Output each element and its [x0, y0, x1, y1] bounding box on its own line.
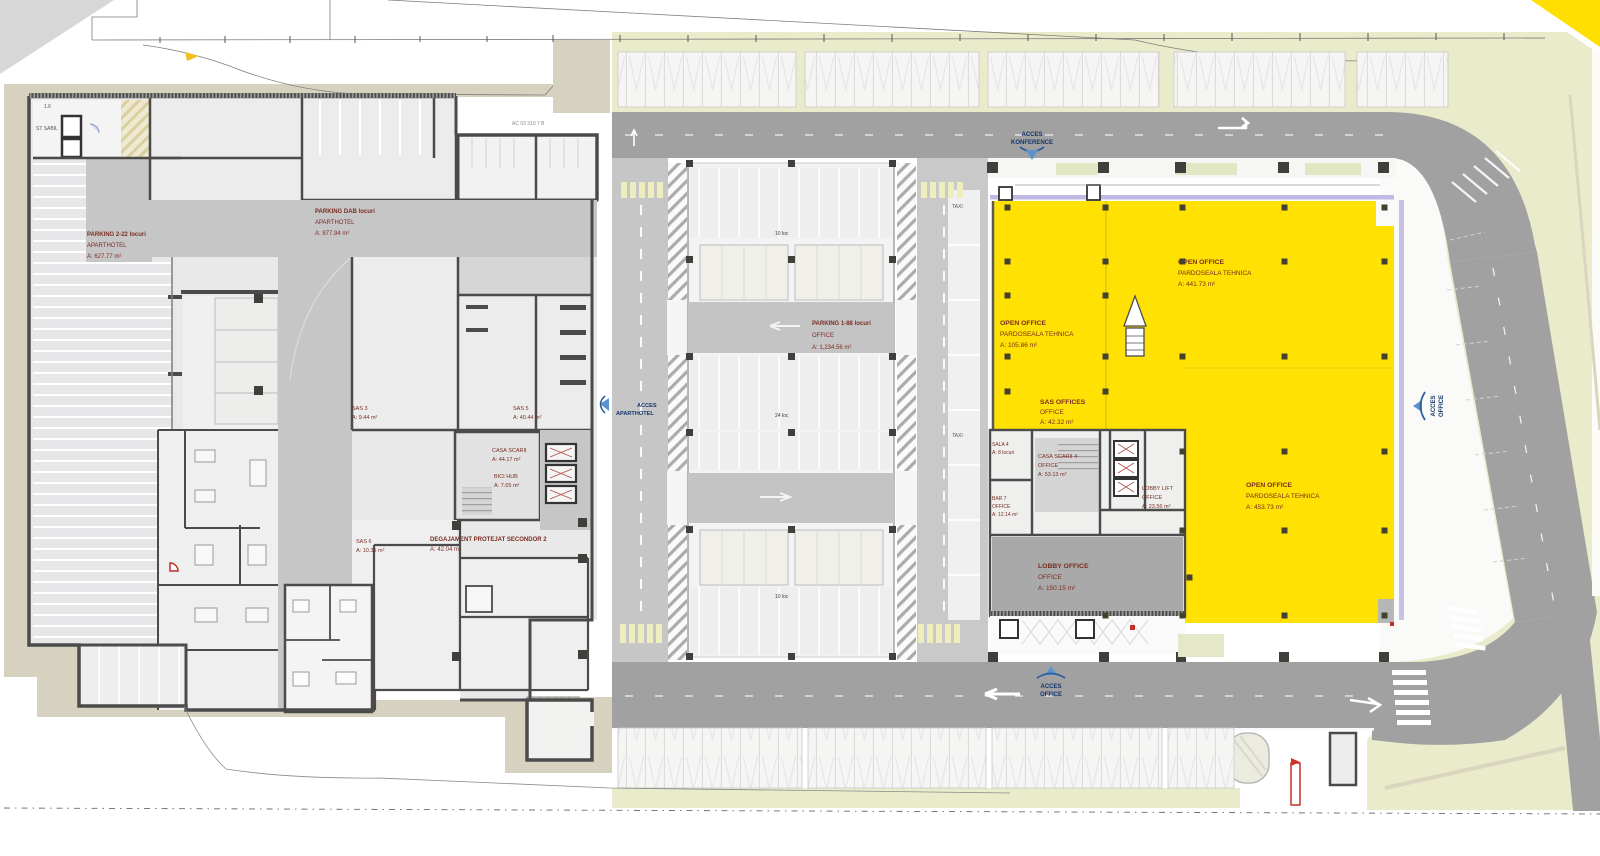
svg-text:A: 1,234.56 m²: A: 1,234.56 m²	[812, 345, 851, 351]
svg-text:APARTHOTEL: APARTHOTEL	[87, 243, 127, 249]
svg-text:DEGAJAMENT PROTEJAT SECONDOR 2: DEGAJAMENT PROTEJAT SECONDOR 2	[430, 537, 547, 543]
svg-text:1.6: 1.6	[44, 104, 51, 110]
svg-text:OFFICE: OFFICE	[1038, 463, 1058, 469]
svg-text:A: 53.13 m²: A: 53.13 m²	[1038, 472, 1067, 478]
svg-text:OFFICE: OFFICE	[1040, 692, 1062, 698]
svg-text:PARDOSEALA TEHNICA: PARDOSEALA TEHNICA	[1246, 493, 1320, 500]
svg-text:SAS 5: SAS 5	[513, 406, 529, 412]
svg-text:A: 105.86 m²: A: 105.86 m²	[1000, 342, 1038, 349]
svg-text:CASA SCARII 4: CASA SCARII 4	[1038, 454, 1077, 460]
svg-text:OPEN OFFICE: OPEN OFFICE	[1246, 482, 1293, 489]
svg-text:A: 627.77 m²: A: 627.77 m²	[87, 254, 121, 260]
svg-text:ACCES: ACCES	[637, 403, 657, 409]
svg-text:APARTHOTEL: APARTHOTEL	[315, 220, 355, 226]
svg-text:SALA 4: SALA 4	[992, 442, 1009, 448]
svg-text:PARDOSEALA TEHNICA: PARDOSEALA TEHNICA	[1000, 331, 1074, 338]
svg-text:APARTHOTEL: APARTHOTEL	[616, 411, 654, 417]
svg-text:A: 441.73 m²: A: 441.73 m²	[1178, 281, 1216, 288]
svg-text:A: 12.14 m²: A: 12.14 m²	[992, 512, 1018, 518]
svg-text:ST SABIL: ST SABIL	[36, 126, 58, 132]
svg-text:24 loc: 24 loc	[775, 413, 789, 419]
svg-text:A: 877.94 m²: A: 877.94 m²	[315, 231, 349, 237]
svg-text:LOBBY OFFICE: LOBBY OFFICE	[1038, 563, 1089, 570]
svg-text:SAS 6: SAS 6	[356, 539, 372, 545]
svg-text:PARDOSEALA TEHNICA: PARDOSEALA TEHNICA	[1178, 270, 1252, 277]
svg-text:BAR 7: BAR 7	[992, 496, 1007, 502]
svg-text:10 loc: 10 loc	[775, 231, 789, 237]
svg-text:PARKING 2-22 locuri: PARKING 2-22 locuri	[87, 232, 146, 238]
svg-text:OPEN OFFICE: OPEN OFFICE	[1000, 320, 1047, 327]
svg-text:A: 7.65 m²: A: 7.65 m²	[494, 483, 520, 489]
svg-text:A: 10.35 m²: A: 10.35 m²	[356, 548, 385, 554]
svg-text:TAXI: TAXI	[952, 433, 963, 439]
svg-text:A: 150.15 m²: A: 150.15 m²	[1038, 585, 1076, 592]
svg-text:AC 03 310 7 B: AC 03 310 7 B	[512, 121, 545, 127]
svg-text:OFFICE: OFFICE	[1439, 395, 1445, 417]
svg-text:LOBBY LIFT: LOBBY LIFT	[1142, 486, 1174, 492]
svg-text:A: 453.73 m²: A: 453.73 m²	[1246, 504, 1284, 511]
svg-text:10 loc: 10 loc	[775, 594, 789, 600]
svg-text:OFFICE: OFFICE	[992, 504, 1011, 510]
svg-text:A: 40.44 m²: A: 40.44 m²	[513, 415, 542, 421]
svg-text:OFFICE: OFFICE	[1038, 574, 1062, 581]
svg-text:A: 8 locuri: A: 8 locuri	[992, 450, 1014, 456]
svg-text:A: 42.04 m²: A: 42.04 m²	[430, 547, 461, 553]
svg-text:A: 9.44 m²: A: 9.44 m²	[352, 415, 378, 421]
svg-text:A: 42.32 m²: A: 42.32 m²	[1040, 419, 1074, 426]
svg-text:SAS OFFICES: SAS OFFICES	[1040, 399, 1086, 406]
svg-text:TAXI: TAXI	[952, 204, 963, 210]
svg-text:SAS 3: SAS 3	[352, 406, 368, 412]
svg-text:ACCES: ACCES	[1040, 684, 1061, 690]
svg-text:PARKING 1-88 locuri: PARKING 1-88 locuri	[812, 321, 871, 327]
svg-text:OFFICE: OFFICE	[1040, 409, 1064, 416]
svg-text:KONFERENCE: KONFERENCE	[1011, 140, 1053, 146]
svg-text:PARKING DAB locuri: PARKING DAB locuri	[315, 209, 375, 215]
svg-text:OFFICE: OFFICE	[812, 333, 834, 339]
svg-text:BICI HUB: BICI HUB	[494, 474, 518, 480]
svg-text:A: 44.17 m²: A: 44.17 m²	[492, 457, 521, 463]
svg-text:ACCES: ACCES	[1021, 132, 1042, 138]
svg-text:ACCES: ACCES	[1431, 395, 1437, 416]
svg-text:CASA SCARII: CASA SCARII	[492, 448, 527, 454]
